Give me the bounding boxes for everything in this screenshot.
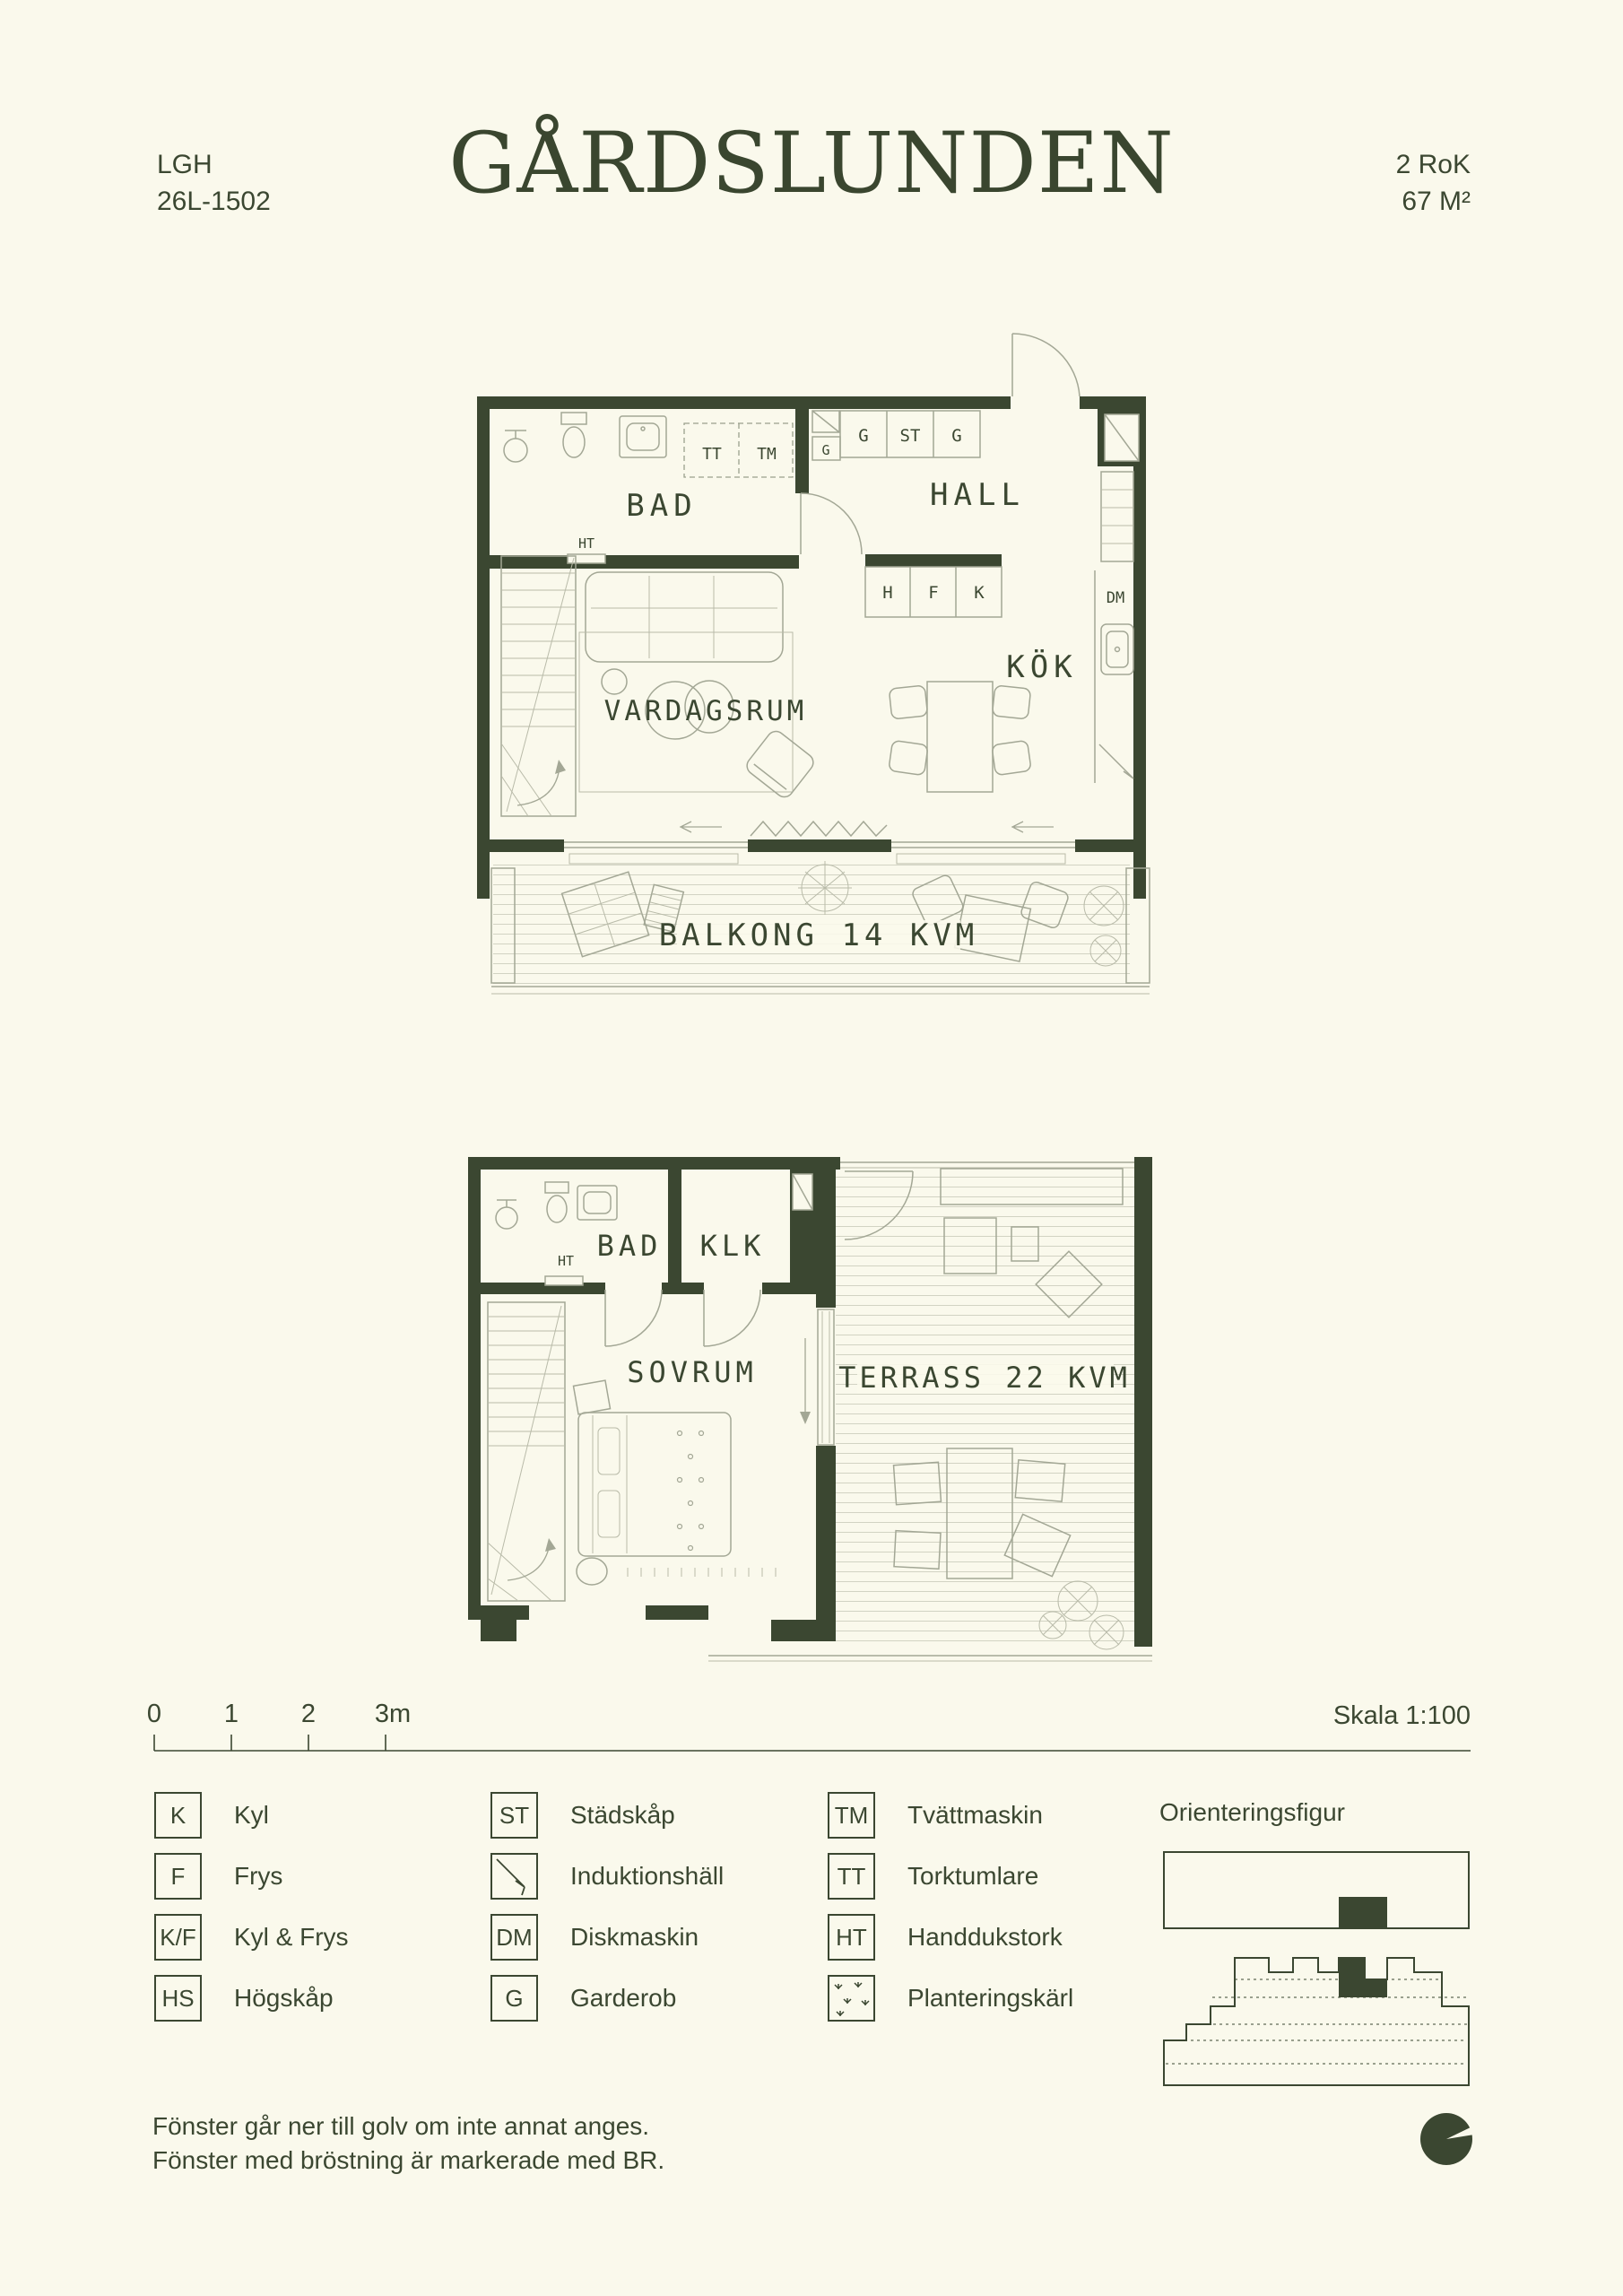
legend-item: G Garderob bbox=[490, 1975, 724, 2022]
stairs-icon bbox=[488, 1302, 565, 1601]
laundry-appliances: TT TM bbox=[684, 423, 793, 477]
rok-value: 2 RoK bbox=[1396, 146, 1471, 183]
apartment-location-marker bbox=[1339, 1958, 1387, 1997]
planter-icon bbox=[828, 1975, 875, 2022]
legend-label: Högskåp bbox=[234, 1984, 334, 2013]
legend-item: TM Tvättmaskin bbox=[828, 1792, 1073, 1839]
induction-hob-icon bbox=[1099, 744, 1133, 778]
ht-marker: HT bbox=[558, 1253, 574, 1269]
legend-symbol-box: K bbox=[154, 1792, 202, 1839]
scale-ratio-label: Skala 1:100 bbox=[1333, 1701, 1471, 1730]
kyl-marker: K bbox=[974, 583, 985, 603]
nightstand-icon bbox=[573, 1380, 610, 1414]
legend-symbol-box: K/F bbox=[154, 1914, 202, 1961]
room-label-bad: BAD bbox=[626, 488, 697, 524]
kitchen-cabinets: H F K bbox=[865, 567, 1002, 617]
hogskap-marker: H bbox=[882, 583, 892, 603]
area-value: 67 M² bbox=[1396, 183, 1471, 220]
legend-item: Induktionshäll bbox=[490, 1853, 724, 1900]
legend-label: Garderob bbox=[570, 1984, 676, 2013]
room-label-terrass: TERRASS 22 KVM bbox=[838, 1361, 1131, 1395]
bathroom-door-icon bbox=[801, 493, 862, 554]
balcony: BALKONG 14 KVM bbox=[491, 861, 1150, 994]
legend-label: Kyl & Frys bbox=[234, 1923, 349, 1952]
legend-column-2: ST Städskåp Induktionshäll DM Diskmaskin… bbox=[490, 1792, 724, 2022]
frys-marker: F bbox=[928, 583, 938, 603]
legend-label: Tvättmaskin bbox=[907, 1801, 1043, 1830]
room-label-vardagsrum: VARDAGSRUM bbox=[604, 695, 808, 727]
legend-item: HT Handdukstork bbox=[828, 1914, 1073, 1961]
apartment-location-marker bbox=[1339, 1897, 1387, 1928]
legend-item: F Frys bbox=[154, 1853, 349, 1900]
floor-plan-lower: HT bbox=[466, 1148, 1157, 1677]
bathroom-door-icon bbox=[605, 1290, 662, 1346]
towel-dryer: HT bbox=[545, 1253, 583, 1285]
induction-hob-icon bbox=[490, 1853, 538, 1900]
legend-item: ST Städskåp bbox=[490, 1792, 724, 1839]
scale-bar: 0 1 2 3m Skala 1:100 bbox=[143, 1695, 1472, 1758]
room-label-hall: HALL bbox=[930, 477, 1025, 513]
room-label-sovrum: SOVRUM bbox=[627, 1355, 758, 1389]
window-strip bbox=[800, 1309, 834, 1445]
balcony-label: BALKONG 14 KVM bbox=[659, 918, 979, 953]
washer-marker: TT bbox=[702, 445, 722, 464]
armchair-icon bbox=[743, 727, 817, 800]
footer-line: Fönster med bröstning är markerade med B… bbox=[152, 2144, 664, 2178]
legend-label: Torktumlare bbox=[907, 1862, 1038, 1891]
slide-arrow-icon bbox=[1012, 822, 1054, 832]
brand-mark-icon bbox=[1419, 2111, 1474, 2167]
legend-item: TT Torktumlare bbox=[828, 1853, 1073, 1900]
legend-item: K/F Kyl & Frys bbox=[154, 1914, 349, 1961]
floor-plan-upper: G G ST G TT TM HT bbox=[471, 323, 1152, 996]
bathroom-fixtures bbox=[496, 1182, 617, 1229]
scale-tick-label: 0 bbox=[147, 1700, 161, 1728]
closet-marker: G bbox=[821, 442, 829, 458]
bed-icon bbox=[573, 1380, 776, 1585]
room-label-klk: KLK bbox=[700, 1229, 766, 1263]
closet-marker: ST bbox=[900, 426, 921, 446]
legend-column-3: TM Tvättmaskin TT Torktumlare HT Handduk… bbox=[828, 1792, 1073, 2022]
legend-item: HS Högskåp bbox=[154, 1975, 349, 2022]
scale-tick-label: 2 bbox=[301, 1700, 316, 1728]
legend-label: Handdukstork bbox=[907, 1923, 1063, 1952]
footer-line: Fönster går ner till golv om inte annat … bbox=[152, 2109, 664, 2144]
closet-door-icon bbox=[704, 1290, 760, 1346]
dryer-marker: TM bbox=[757, 445, 777, 464]
closet-marker: G bbox=[858, 426, 868, 446]
legend-symbol-box: DM bbox=[490, 1914, 538, 1961]
legend-label: Kyl bbox=[234, 1801, 269, 1830]
footer-notes: Fönster går ner till golv om inte annat … bbox=[152, 2109, 664, 2178]
legend-item: K Kyl bbox=[154, 1792, 349, 1839]
apartment-facts: 2 RoK 67 M² bbox=[1396, 146, 1471, 220]
vent-shaft-icon bbox=[793, 1174, 812, 1210]
legend-column-1: K Kyl F Frys K/F Kyl & Frys HS Högskåp bbox=[154, 1792, 349, 2022]
room-label-kok: KÖK bbox=[1006, 648, 1077, 685]
legend-label: Planteringskärl bbox=[907, 1984, 1073, 2013]
legend-label: Frys bbox=[234, 1862, 282, 1891]
orientation-figure bbox=[1157, 1848, 1480, 2099]
closet-marker: G bbox=[951, 426, 961, 446]
orientation-title: Orienteringsfigur bbox=[1159, 1798, 1345, 1827]
legend-symbol-box: F bbox=[154, 1853, 202, 1900]
kitchen-counter: DM bbox=[1095, 472, 1133, 783]
room-label-bad: BAD bbox=[597, 1229, 663, 1263]
scale-tick-label: 3m bbox=[375, 1700, 411, 1728]
legend-symbol-box: TM bbox=[828, 1792, 875, 1839]
legend-label: Diskmaskin bbox=[570, 1923, 699, 1952]
legend-symbol-box: TT bbox=[828, 1853, 875, 1900]
folding-door-icon bbox=[751, 822, 887, 836]
sofa-icon bbox=[586, 572, 783, 662]
legend-symbol-box: G bbox=[490, 1975, 538, 2022]
legend-item: Planteringskärl bbox=[828, 1975, 1073, 2022]
scale-tick-label: 1 bbox=[224, 1700, 239, 1728]
stool-icon bbox=[577, 1558, 607, 1585]
legend-symbol-box: HT bbox=[828, 1914, 875, 1961]
stairs-icon bbox=[501, 556, 576, 816]
project-logo: GÅRDSLUNDEN bbox=[0, 115, 1623, 213]
legend-item: DM Diskmaskin bbox=[490, 1914, 724, 1961]
legend-label: Induktionshäll bbox=[570, 1862, 724, 1891]
dining-set-icon bbox=[889, 682, 1031, 792]
terrace bbox=[708, 1162, 1152, 1661]
legend-label: Städskåp bbox=[570, 1801, 675, 1830]
entrance-door-icon bbox=[1012, 334, 1080, 396]
slide-arrow-icon bbox=[681, 822, 722, 832]
bathroom-fixtures bbox=[504, 413, 666, 462]
legend-symbol-box: HS bbox=[154, 1975, 202, 2022]
dishwasher-marker: DM bbox=[1107, 589, 1124, 607]
down-arrow-icon bbox=[800, 1412, 811, 1424]
legend-symbol-box: ST bbox=[490, 1792, 538, 1839]
ht-marker: HT bbox=[578, 535, 595, 552]
